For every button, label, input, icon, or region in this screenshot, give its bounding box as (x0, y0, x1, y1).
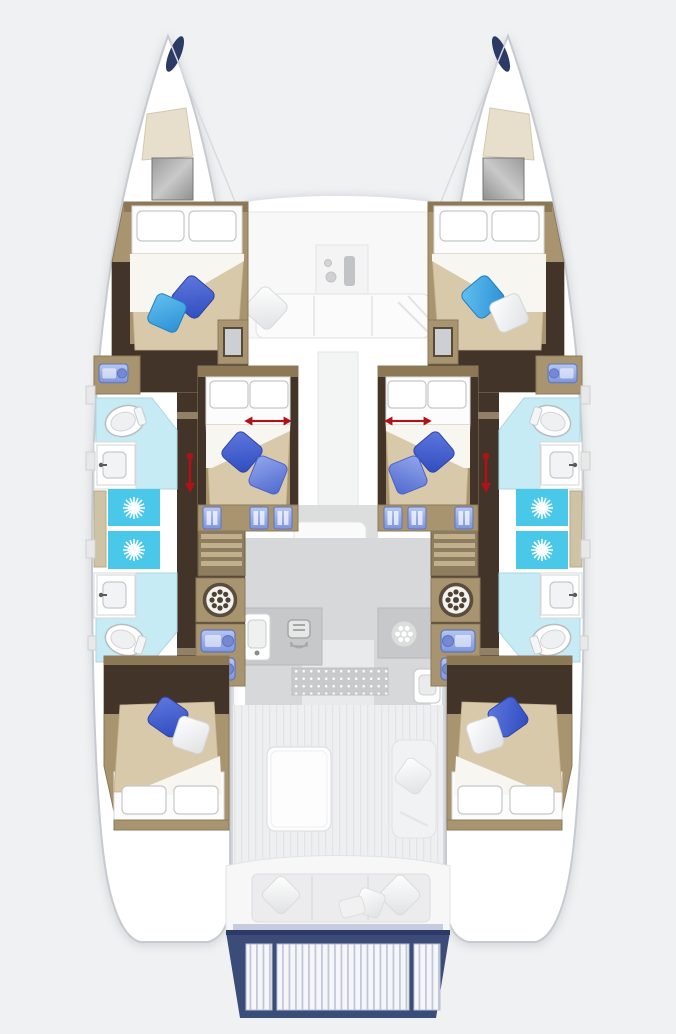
platform-slats-center (277, 944, 409, 1010)
sink-basin (248, 620, 266, 648)
cockpit-chaise (392, 740, 436, 838)
cockpit-table (267, 747, 331, 831)
forward-cockpit (240, 212, 436, 338)
galley-floor-mat (292, 668, 388, 695)
console-knob (326, 272, 336, 282)
mast-post-panel (318, 352, 358, 510)
console-knob (325, 260, 332, 267)
galley-salon (240, 538, 440, 733)
burner-icon (391, 621, 417, 647)
central-cabin-port (198, 366, 298, 531)
catamaran-floorplan (0, 0, 676, 1034)
console-panel (344, 256, 355, 286)
faucet (255, 651, 260, 656)
platform-slats-right (414, 944, 440, 1010)
transom-beam (226, 930, 450, 935)
platform-slats-left (246, 944, 272, 1010)
central-cabin-starboard (378, 366, 478, 531)
swim-platform (226, 924, 450, 1018)
aft-bench (226, 856, 450, 933)
floorplan-stage (0, 0, 676, 1034)
